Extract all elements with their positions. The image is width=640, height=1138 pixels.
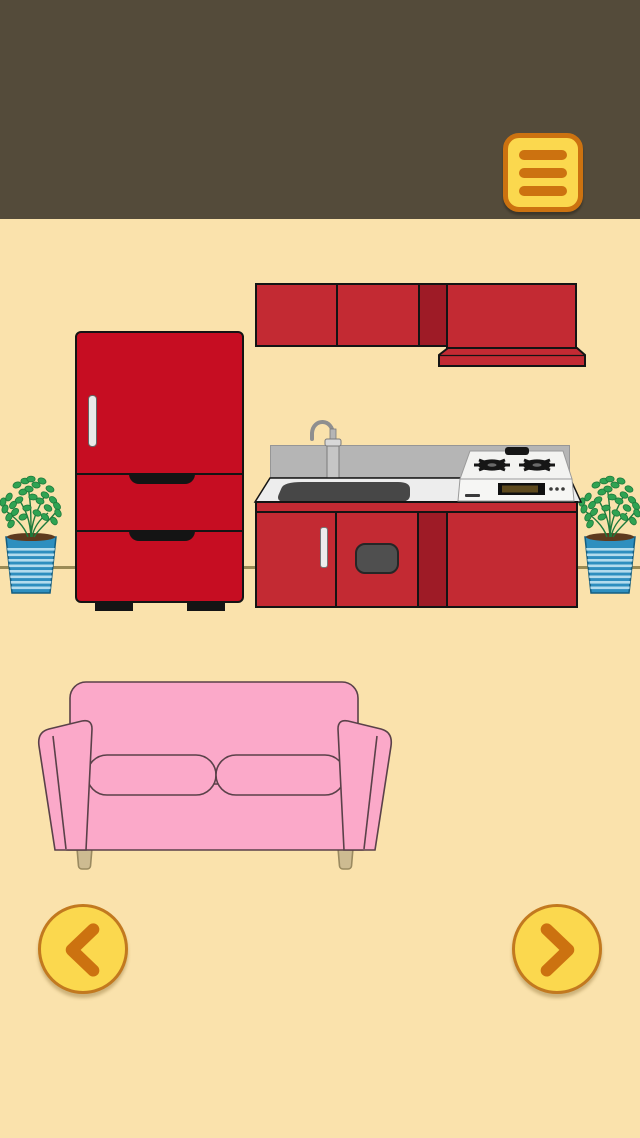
stove-button: [549, 487, 553, 491]
range-hood: [446, 283, 577, 349]
prev-room-button[interactable]: [38, 904, 128, 994]
sofa-arm-right: [338, 721, 391, 850]
stove-button: [555, 487, 559, 491]
potted-plant-left[interactable]: [0, 475, 64, 599]
sofa-cushion-right: [216, 755, 345, 795]
cabinet-recessed-handle: [355, 543, 399, 574]
fridge-door-handle: [88, 395, 97, 447]
hamburger-bar: [519, 168, 567, 178]
hamburger-bar: [519, 186, 567, 196]
chevron-right-icon: [515, 907, 599, 991]
gas-stove[interactable]: [453, 444, 581, 504]
menu-button[interactable]: [503, 133, 583, 212]
grill-vent: [505, 447, 529, 455]
sofa-cushion-left: [87, 755, 216, 795]
fridge-foot: [95, 602, 133, 611]
chevron-left-icon: [41, 907, 125, 991]
lower-cabinet-strip: [417, 511, 448, 608]
sink[interactable]: [278, 482, 410, 502]
fridge-foot: [187, 602, 225, 611]
upper-cabinet-door-right[interactable]: [336, 283, 420, 347]
hamburger-bar: [519, 150, 567, 160]
burner-left-icon: [474, 459, 510, 470]
refrigerator[interactable]: [75, 331, 244, 603]
burner-right-icon: [519, 459, 555, 470]
fridge-drawer-handle: [129, 531, 195, 541]
lower-cabinet-panel-right[interactable]: [446, 511, 578, 608]
fridge-drawer-handle: [129, 474, 195, 484]
sofa-leg: [338, 848, 353, 869]
hood-duct-panel: [418, 283, 448, 347]
sofa[interactable]: [35, 672, 395, 877]
stove-button: [561, 487, 565, 491]
range-hood-canopy: [436, 346, 588, 368]
grill-handle: [465, 494, 480, 497]
game-room-view: [0, 0, 640, 1138]
sofa-leg: [77, 848, 92, 869]
cabinet-door-handle: [320, 527, 328, 568]
sofa-arm-left: [39, 721, 92, 850]
upper-cabinet-door-left[interactable]: [255, 283, 338, 347]
next-room-button[interactable]: [512, 904, 602, 994]
